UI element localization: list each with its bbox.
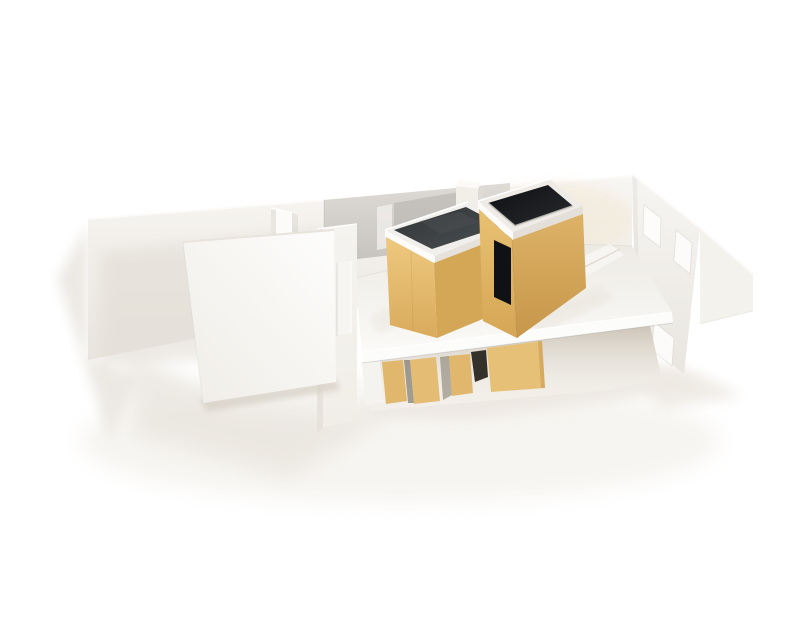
model-photo xyxy=(40,16,800,616)
gold-column-2 xyxy=(410,357,440,404)
gold-column-4 xyxy=(487,341,545,392)
gold-column-3 xyxy=(449,354,473,396)
gold-column-1 xyxy=(382,360,407,404)
fin-wall-side xyxy=(271,208,276,237)
front-panel xyxy=(183,230,340,412)
model-photo-canvas xyxy=(40,16,800,616)
front-panel-face xyxy=(183,230,336,403)
right-tower-doorway xyxy=(494,240,511,305)
left-wall-slot-window xyxy=(337,261,351,336)
